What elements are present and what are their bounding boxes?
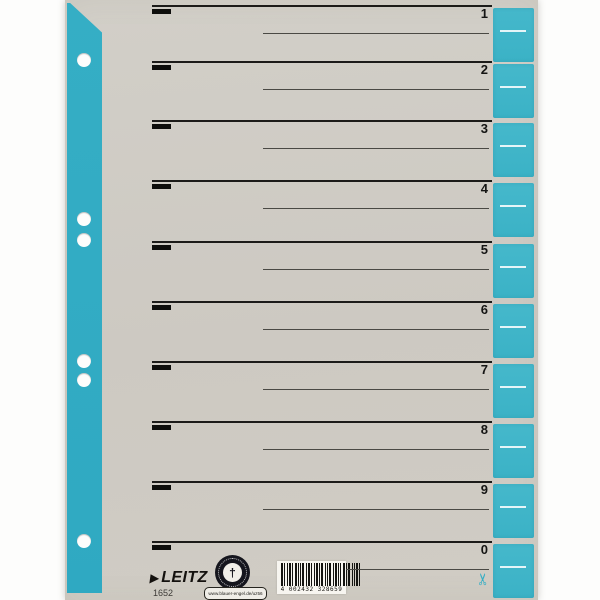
tab-number: 0 — [460, 543, 488, 556]
index-tab — [493, 424, 534, 478]
barcode-bar — [352, 563, 353, 586]
tab-number: 3 — [460, 122, 488, 135]
barcode-bar — [329, 563, 331, 586]
index-tab — [493, 183, 534, 237]
section-top-line — [152, 481, 492, 483]
section-writing-line — [263, 208, 489, 209]
barcode-bar — [354, 563, 355, 586]
barcode-bar — [338, 563, 339, 586]
section-writing-line — [263, 389, 489, 390]
section-top-line — [152, 361, 492, 363]
tab-blank-line — [500, 506, 526, 508]
section-start-mark — [152, 305, 171, 310]
product-photo: ▶ LEITZ 1652 † www.blauer-engel.de/uz56 … — [0, 0, 600, 600]
section-top-line — [152, 241, 492, 243]
tab-number: 2 — [460, 63, 488, 76]
section-top-line — [152, 421, 492, 423]
section-start-mark — [152, 365, 171, 370]
barcode-bar — [333, 563, 334, 586]
barcode: 4 002432 328659 — [277, 561, 346, 594]
barcode-bar — [327, 563, 328, 586]
punch-hole — [77, 233, 91, 247]
section-start-mark — [152, 485, 171, 490]
section-start-mark — [152, 9, 171, 14]
section-start-mark — [152, 184, 171, 189]
section-top-line — [152, 5, 492, 7]
punch-hole — [77, 53, 91, 67]
tab-blank-line — [500, 30, 526, 32]
section-top-line — [152, 61, 492, 63]
section-writing-line — [263, 329, 489, 330]
index-tab — [493, 364, 534, 418]
index-tab — [493, 304, 534, 358]
barcode-bar — [311, 563, 312, 586]
index-tab — [493, 244, 534, 298]
index-tab — [493, 544, 534, 598]
tab-number: 1 — [460, 7, 488, 20]
index-tab — [493, 8, 534, 62]
punch-hole — [77, 212, 91, 226]
eco-url-box: www.blauer-engel.de/uz56 — [204, 587, 267, 600]
barcode-bar — [298, 563, 299, 586]
punch-hole — [77, 354, 91, 368]
tab-blank-line — [500, 326, 526, 328]
barcode-bar — [325, 563, 326, 586]
section-writing-line — [263, 449, 489, 450]
tab-blank-line — [500, 446, 526, 448]
section-top-line — [152, 180, 492, 182]
barcode-bar — [308, 563, 310, 586]
section-top-line — [152, 541, 492, 543]
section-top-line — [152, 301, 492, 303]
tab-number: 8 — [460, 423, 488, 436]
tab-blank-line — [500, 145, 526, 147]
scissors-icon: ✂ — [476, 572, 492, 585]
barcode-bar — [302, 563, 304, 586]
tab-number: 5 — [460, 243, 488, 256]
tab-blank-line — [500, 266, 526, 268]
index-tab — [493, 484, 534, 538]
barcode-bar — [319, 563, 320, 586]
section-writing-line — [263, 148, 489, 149]
barcode-bar — [295, 563, 297, 586]
tab-blank-line — [500, 386, 526, 388]
brand-logo-text: LEITZ — [161, 570, 207, 586]
badge-figure-icon: † — [223, 563, 242, 582]
index-tab — [493, 64, 534, 118]
section-start-mark — [152, 245, 171, 250]
section-start-mark — [152, 425, 171, 430]
tab-number: 4 — [460, 182, 488, 195]
barcode-bar — [346, 563, 347, 586]
barcode-bar — [292, 563, 293, 586]
tab-blank-line — [500, 566, 526, 568]
barcode-bar — [281, 563, 283, 586]
barcode-bar — [340, 563, 341, 586]
leitz-arrow-icon: ▶ — [149, 572, 160, 584]
punch-hole — [77, 373, 91, 387]
product-number: 1652 — [153, 588, 173, 598]
divider-card: ▶ LEITZ 1652 † www.blauer-engel.de/uz56 … — [65, 0, 538, 600]
section-start-mark — [152, 545, 171, 550]
barcode-bar — [300, 563, 301, 586]
barcode-bar — [348, 563, 350, 586]
punch-hole — [77, 534, 91, 548]
barcode-digits: 4 002432 328659 — [277, 586, 346, 593]
barcode-bar — [335, 563, 337, 586]
section-writing-line — [263, 269, 489, 270]
tab-blank-line — [500, 205, 526, 207]
barcode-bar — [284, 563, 285, 586]
section-start-mark — [152, 124, 171, 129]
section-top-line — [152, 120, 492, 122]
index-tab — [493, 123, 534, 177]
barcode-bar — [316, 563, 318, 586]
tab-blank-line — [500, 86, 526, 88]
tab-number: 9 — [460, 483, 488, 496]
barcode-bar — [343, 563, 345, 586]
barcode-bar — [306, 563, 307, 586]
barcode-bar — [287, 563, 288, 586]
section-writing-line — [263, 33, 489, 34]
barcode-bar — [321, 563, 323, 586]
section-writing-line — [346, 569, 489, 570]
eco-url-text: www.blauer-engel.de/uz56 — [208, 591, 262, 597]
barcode-bars — [281, 563, 343, 586]
tab-number: 6 — [460, 303, 488, 316]
barcode-bar — [356, 563, 358, 586]
barcode-bar — [289, 563, 291, 586]
section-writing-line — [263, 509, 489, 510]
barcode-bar — [359, 563, 360, 586]
section-start-mark — [152, 65, 171, 70]
blauer-engel-badge: † — [215, 555, 250, 590]
brand-logo: ▶ LEITZ — [150, 570, 208, 586]
section-writing-line — [263, 89, 489, 90]
barcode-bar — [314, 563, 315, 586]
tab-number: 7 — [460, 363, 488, 376]
spine-strip — [67, 3, 102, 593]
